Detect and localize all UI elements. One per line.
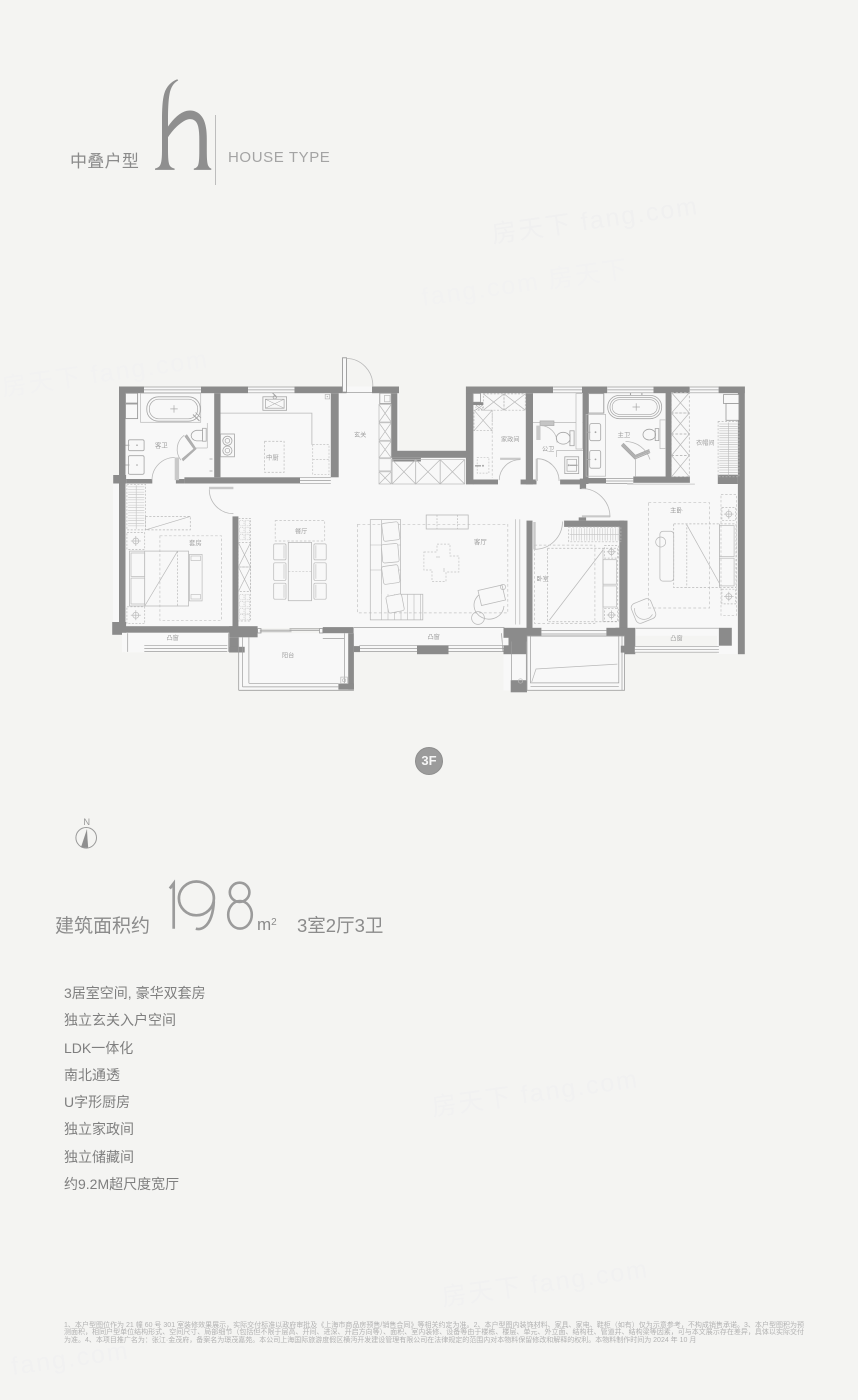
svg-text:主卫: 主卫 <box>618 430 631 439</box>
svg-text:家政间: 家政间 <box>501 436 520 444</box>
svg-text:凸窗: 凸窗 <box>428 633 440 641</box>
svg-text:卧室: 卧室 <box>537 575 549 583</box>
svg-text:客厅: 客厅 <box>474 537 487 546</box>
svg-text:玄关: 玄关 <box>354 431 366 439</box>
svg-text:公卫: 公卫 <box>542 446 554 453</box>
svg-text:衣帽间: 衣帽间 <box>696 439 715 447</box>
svg-text:凸窗: 凸窗 <box>670 635 682 643</box>
svg-text:主卧: 主卧 <box>670 506 683 515</box>
